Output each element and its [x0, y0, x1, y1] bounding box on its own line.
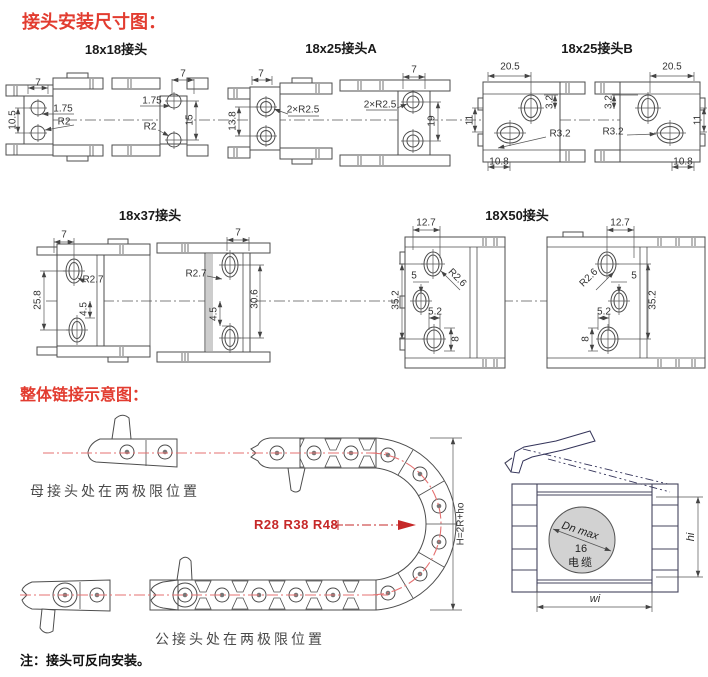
dim-label-g5l-5: 5	[411, 271, 417, 282]
dim-label-g1l-7: 7	[35, 78, 41, 89]
view-18x50-right	[547, 226, 705, 368]
dim-label-g4r-4-5: 4.5	[209, 307, 220, 321]
dim-label-g3l-20-5: 20.5	[500, 62, 519, 73]
dim-label-g5r-8: 8	[581, 336, 592, 342]
dim-label-g4r-r2-7: R2.7	[185, 269, 206, 280]
dim-label-g1r-7: 7	[180, 69, 186, 80]
inner-height-label: hi	[685, 533, 697, 542]
dim-label-g3l-10-8: 10.8	[489, 157, 508, 168]
dim-label-g2r-2xr2-5: 2×R2.5	[364, 100, 397, 111]
tilted-link	[511, 431, 595, 473]
dim-label-g5r-5: 5	[631, 271, 637, 282]
dim-label-g5l-35-2: 35.2	[391, 290, 402, 309]
dim-label-g3r-10-8: 10.8	[673, 157, 692, 168]
section-title-18x50: 18X50接头	[485, 205, 549, 224]
bend-radius-callout	[333, 520, 416, 530]
dim-label-g4l-4-5: 4.5	[79, 302, 90, 316]
female-connector-fin	[288, 468, 305, 492]
dim-label-g1l-10-5: 10.5	[8, 110, 19, 129]
dim-label-g3r-r3-2: R3.2	[602, 127, 623, 138]
dim-label-g3r-11: 11	[693, 115, 704, 125]
view-18x18-left	[6, 73, 103, 161]
dim-label-g1r-r2: R2	[144, 122, 157, 133]
inner-width-label: wi	[590, 593, 600, 605]
female-position-label: 母接头处在两极限位置	[30, 481, 200, 501]
dim-label-g3r-3-2: 3.2	[604, 95, 615, 109]
dim-label-g4l-r2-7: R2.7	[82, 275, 103, 286]
dim-label-g3l-3-2: 3.2	[545, 95, 556, 109]
dim-label-g2l-7: 7	[258, 69, 264, 80]
dim-label-g4r-30-6: 30.6	[250, 289, 261, 308]
dim-label-g5r-12-7: 12.7	[610, 218, 629, 229]
dim-label-g1l-r2: R2	[58, 117, 71, 128]
height-formula-label: H=2R+ho	[456, 503, 467, 546]
dim-label-g2l-13-8: 13.8	[228, 111, 239, 130]
dim-label-g5l-5-2: 5.2	[428, 307, 442, 318]
assembly-section-title: 整体链接示意图：	[20, 381, 148, 405]
dim-label-g1r-1-75: 1.75	[142, 96, 161, 107]
male-position-label: 公接头处在两极限位置	[155, 629, 325, 649]
dim-label-g4l-25-8: 25.8	[33, 290, 44, 309]
dim-label-g4r-7: 7	[235, 228, 241, 239]
section-title-18x37: 18x37接头	[119, 205, 181, 224]
page: 接头安装尺寸图： 18x18接头 18x25接头A 18x25接头B 18x37…	[0, 0, 708, 677]
dim-label-g5r-35-2: 35.2	[648, 290, 659, 309]
section-title-18x25a: 18x25接头A	[305, 38, 377, 57]
diagram-canvas	[0, 0, 708, 677]
section-title-18x18: 18x18接头	[85, 39, 147, 58]
dim-label-g2l-2xr2-5: 2×R2.5	[287, 105, 320, 116]
dim-label-g5r-5-2: 5.2	[597, 307, 611, 318]
dim-label-g4l-7: 7	[61, 230, 67, 241]
dim-label-g1r-15: 15	[185, 114, 196, 125]
section-title-18x25b: 18x25接头B	[561, 38, 633, 57]
dim-label-g2r-19: 19	[427, 115, 438, 126]
view-18x37-left	[37, 238, 150, 362]
chain-assembly	[20, 415, 462, 633]
page-title: 接头安装尺寸图：	[22, 8, 166, 34]
dim-label-g5l-12-7: 12.7	[416, 218, 435, 229]
view-18x50-left	[399, 226, 505, 368]
dim-label-g2r-7: 7	[411, 65, 417, 76]
bend-radius-label: R28 R38 R48	[254, 517, 338, 532]
cable-text-label: 电缆	[568, 554, 594, 570]
cross-section-view	[505, 431, 703, 612]
dim-label-g3l-r3-2: R3.2	[549, 129, 570, 140]
dim-label-g3l-11: 11	[465, 115, 476, 125]
dim-label-g3r-20-5: 20.5	[662, 62, 681, 73]
dim-label-g5l-8: 8	[451, 336, 462, 342]
dim-label-g1l-1-75: 1.75	[53, 104, 72, 115]
footer-note: 注：接头可反向安装。	[20, 650, 150, 669]
